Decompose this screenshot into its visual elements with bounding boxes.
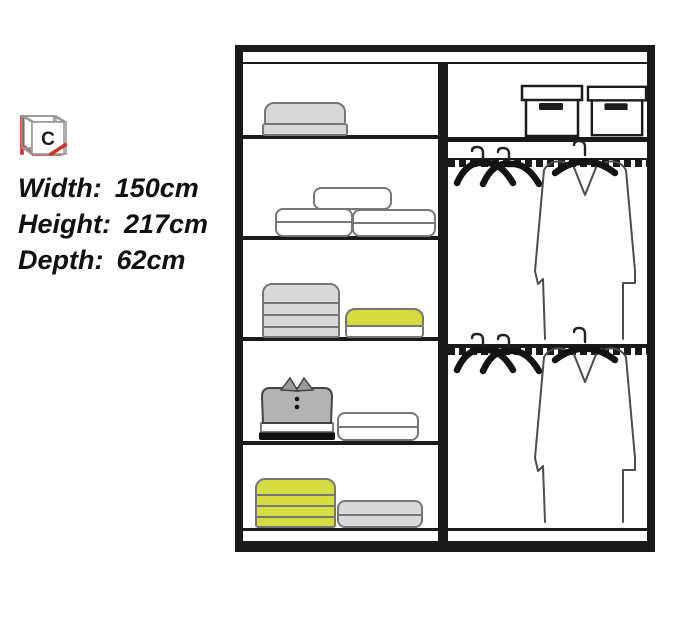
center-divider: [438, 62, 448, 541]
wardrobe-interior: [235, 45, 655, 552]
gray-linen-stack: [262, 283, 340, 338]
gray-folded-item: [337, 500, 423, 528]
box-handle-slot: [604, 103, 627, 110]
dimension-height-value: 217cm: [124, 206, 208, 242]
garment-right-edge: [597, 348, 635, 522]
frame-left: [235, 45, 243, 552]
hanging-garment-2: [523, 330, 647, 526]
dimension-width-value: 150cm: [115, 170, 199, 206]
folded-duvet-right: [352, 209, 436, 237]
box-lid: [522, 86, 582, 100]
white-shirt-layer: [261, 423, 333, 432]
dimension-width-label: Width:: [18, 170, 102, 206]
hanger-hook-icon: [498, 335, 509, 349]
storage-box-2: [587, 85, 647, 137]
dimension-height-label: Height:: [18, 206, 111, 242]
garment-hanger-hook-icon: [574, 328, 585, 342]
dimension-depth-value: 62cm: [116, 242, 185, 278]
garment-hanger-hook-icon: [574, 141, 585, 155]
folded-towel-bottom: [262, 123, 348, 136]
storage-box-1: [521, 85, 583, 137]
box-lid: [588, 87, 646, 101]
hanging-garment-1: [523, 143, 647, 343]
variant-option-c[interactable]: C: [20, 114, 66, 158]
frame-right: [647, 45, 655, 552]
garment-right-edge: [597, 161, 635, 339]
wardrobe-product-diagram: A B C Width: 150cm Height: 217cm De: [0, 0, 700, 621]
polo-collar-left: [281, 378, 298, 391]
garment-left-edge: [535, 348, 573, 522]
folded-towel-top: [264, 102, 346, 125]
black-shirt-layer: [259, 432, 335, 440]
dimension-height: Height: 217cm: [18, 206, 208, 242]
yellow-item-base: [345, 325, 424, 338]
folded-duvet-left: [275, 208, 353, 237]
box-handle-slot: [539, 103, 563, 110]
dimension-width: Width: 150cm: [18, 170, 208, 206]
dimension-depth-label: Depth:: [18, 242, 103, 278]
garment-neckline: [573, 165, 597, 195]
folded-polo-shirts: [257, 375, 337, 442]
polo-button: [295, 405, 300, 410]
frame-top: [235, 45, 655, 52]
garment-neckline: [573, 352, 597, 382]
polo-collar-right: [296, 378, 313, 391]
box-shelf: [448, 137, 647, 142]
garment-left-edge: [535, 161, 573, 339]
frame-bottom: [235, 541, 655, 552]
white-folded-item: [337, 412, 419, 441]
hanger-hook-icon: [472, 147, 483, 161]
yellow-linen-stack: [255, 478, 336, 528]
dimensions-list: Width: 150cm Height: 217cm Depth: 62cm: [18, 170, 208, 278]
hanger-hook-icon: [472, 334, 483, 348]
dimension-depth: Depth: 62cm: [18, 242, 208, 278]
hanger-hook-icon: [498, 148, 509, 162]
polo-button: [295, 397, 300, 402]
folded-duvet-top: [313, 187, 392, 210]
variant-label-c: C: [41, 129, 55, 150]
